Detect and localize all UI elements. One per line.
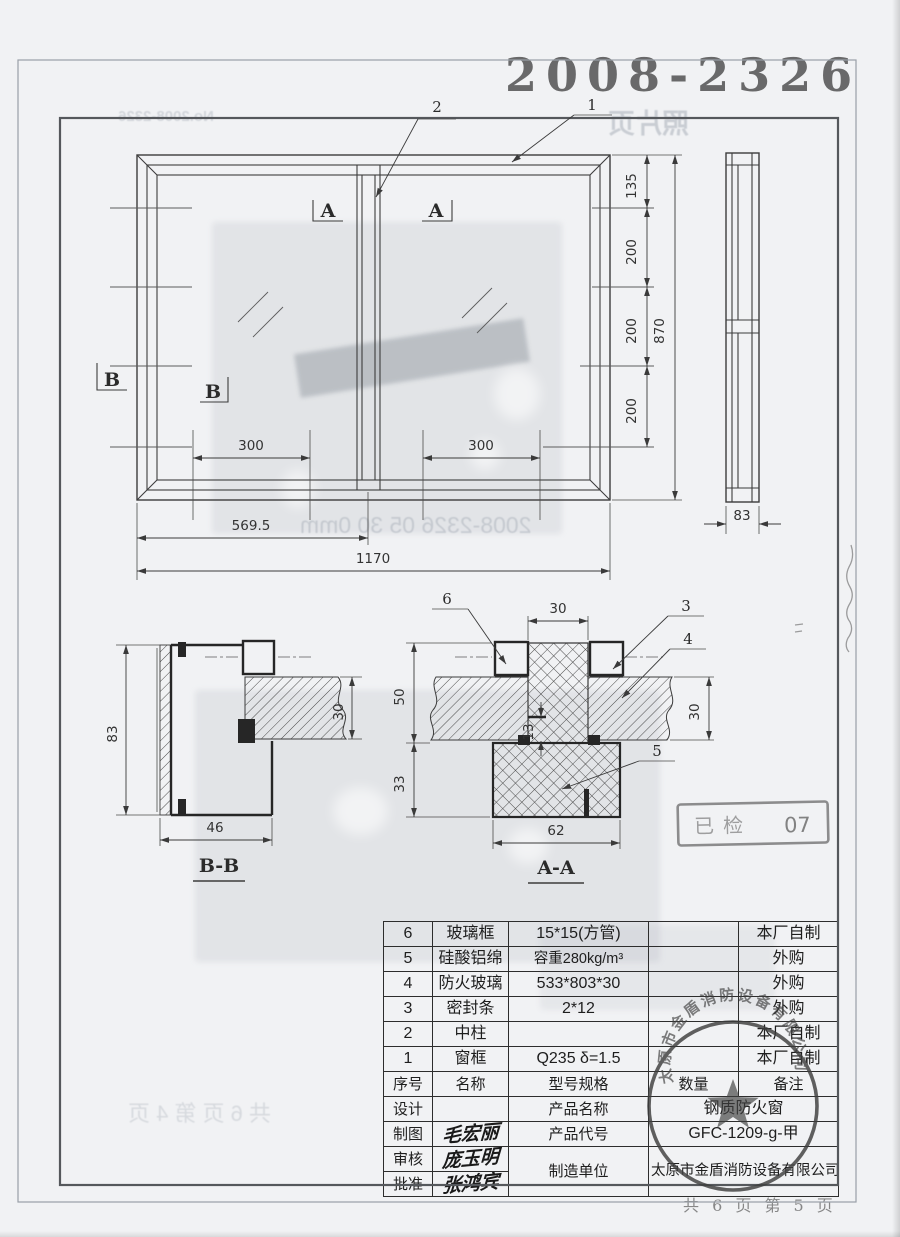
bom-qty [649, 922, 739, 947]
handwritten-signature: 庞玉明 [442, 1147, 500, 1171]
svg-text:4: 4 [683, 630, 693, 648]
title-block-row: 审核 庞玉明 制造单位 太原市金盾消防设备有限公司 [384, 1147, 839, 1172]
bom-seq: 4 [384, 972, 433, 997]
product-name-value: 钢质防火窗 [649, 1097, 839, 1122]
dim-200: 200 [624, 318, 640, 344]
inspection-stamp-text: 已检 [694, 814, 752, 838]
bom-seq: 1 [384, 1047, 433, 1072]
photo-bleed-blob [470, 440, 500, 470]
bom-header-name: 名称 [433, 1072, 509, 1097]
drawing-number-stamp: 2008-2326 [505, 48, 861, 102]
bom-header-spec: 型号规格 [509, 1072, 649, 1097]
photo-bleed-blob [281, 470, 315, 508]
title-block-row: 设计 产品名称 钢质防火窗 [384, 1097, 839, 1122]
bom-spec: 15*15(方管) [509, 922, 649, 947]
glazing-bead-section [590, 642, 623, 675]
bom-remark: 本厂自制 [739, 1047, 839, 1072]
scanned-drawing-page: No.2008-2326 照片页 2008-2326 05 30 0mm 共 6… [0, 0, 900, 1237]
callout-6: 6 [432, 590, 506, 664]
product-code-label: 产品代号 [509, 1122, 649, 1147]
bom-remark: 外购 [739, 997, 839, 1022]
bom-name: 密封条 [433, 997, 509, 1022]
bom-qty [649, 947, 739, 972]
photo-bleed-blob [508, 828, 548, 864]
title-block-row: 制图 毛宏丽 产品代号 GFC-1209-g-甲 [384, 1122, 839, 1147]
bom-qty [649, 997, 739, 1022]
bom-remark: 外购 [739, 947, 839, 972]
bom-row: 5 硅酸铝绵 容重280kg/m³ 外购 [384, 947, 839, 972]
page-footer: 共 6 页 第 5 页 [683, 1192, 837, 1216]
bom-name: 防火玻璃 [433, 972, 509, 997]
section-mark-b: B B [97, 363, 228, 403]
dim-200: 200 [624, 398, 640, 424]
dim-135: 135 [624, 173, 640, 199]
dim-83-depth: 83 [733, 508, 750, 524]
glazing-bead-section [243, 641, 274, 674]
scan-edge-shadow [0, 1231, 900, 1237]
product-name-label: 产品名称 [509, 1097, 649, 1122]
bom-row: 2 中柱 本厂自制 [384, 1022, 839, 1047]
draft-signature: 毛宏丽 [433, 1122, 509, 1147]
bom-seq: 6 [384, 922, 433, 947]
callout-3: 3 [613, 597, 704, 669]
dim-200: 200 [624, 239, 640, 265]
callout-2: 2 [376, 98, 456, 197]
bom-seq: 2 [384, 1022, 433, 1047]
svg-text:A: A [428, 200, 444, 222]
dim-1170: 1170 [356, 551, 390, 567]
bleed-footer: 共 6 页 第 4 页 [128, 1096, 271, 1128]
bom-name: 中柱 [433, 1022, 509, 1047]
dim-30-mullion: 30 [549, 601, 566, 617]
review-signature: 庞玉明 [433, 1147, 509, 1172]
bom-row: 4 防火玻璃 533*803*30 外购 [384, 972, 839, 997]
bleed-photo-page-label: 照片页 [608, 102, 689, 141]
manufacturer-label: 制造单位 [509, 1147, 649, 1197]
bleed-photo-caption: 2008-2326 05 30 0mm [300, 512, 531, 539]
bom-spec: 2*12 [509, 997, 649, 1022]
inspection-stamp-number: 07 [784, 813, 811, 838]
dim-83-height: 83 [105, 725, 121, 742]
handwritten-signature: 毛宏丽 [442, 1122, 500, 1146]
bom-header-qty: 数量 [649, 1072, 739, 1097]
bom-header-seq: 序号 [384, 1072, 433, 1097]
bom-row: 1 窗框 Q235 δ=1.5 本厂自制 [384, 1047, 839, 1072]
bom-header-row: 序号 名称 型号规格 数量 备注 [384, 1072, 839, 1097]
product-code-value: GFC-1209-g-甲 [649, 1122, 839, 1147]
bom-remark: 本厂自制 [739, 1022, 839, 1047]
glazing-bead-section [495, 642, 528, 675]
design-label: 设计 [384, 1097, 433, 1122]
margin-scribble [795, 545, 853, 652]
bom-header-remark: 备注 [739, 1072, 839, 1097]
handwritten-signature: 张鸿宾 [442, 1172, 500, 1196]
inspection-stamp: 已检 07 [678, 801, 829, 845]
dim-30-glass: 30 [687, 703, 703, 720]
scan-edge-shadow [892, 0, 900, 1237]
bom-name: 硅酸铝绵 [433, 947, 509, 972]
bom-qty [649, 1022, 739, 1047]
svg-text:B: B [104, 369, 120, 391]
photo-bleed-blob [494, 368, 540, 420]
bom-seq: 3 [384, 997, 433, 1022]
draft-label: 制图 [384, 1122, 433, 1147]
side-depth-dimension: 83 [704, 506, 781, 534]
design-signature [433, 1097, 509, 1122]
bleed-doc-number: No.2008-2326 [118, 108, 214, 125]
bom-remark: 本厂自制 [739, 922, 839, 947]
bom-spec: 容重280kg/m³ [509, 947, 649, 972]
dim-870: 870 [652, 318, 668, 344]
approve-label: 批准 [384, 1172, 433, 1197]
section-mark-a: A A [313, 200, 452, 222]
bom-spec [509, 1022, 649, 1047]
height-dimensions: 135 200 200 200 870 [612, 155, 682, 500]
bom-row: 3 密封条 2*12 外购 [384, 997, 839, 1022]
svg-text:A: A [320, 200, 336, 222]
callout-1: 1 [512, 96, 612, 162]
bom-title-block-table: 6 玻璃框 15*15(方管) 本厂自制 5 硅酸铝绵 容重280kg/m³ 外… [383, 921, 839, 1197]
bom-row: 6 玻璃框 15*15(方管) 本厂自制 [384, 922, 839, 947]
bom-spec: 533*803*30 [509, 972, 649, 997]
bom-remark: 外购 [739, 972, 839, 997]
bom-qty [649, 1047, 739, 1072]
svg-text:6: 6 [442, 590, 452, 608]
approve-signature: 张鸿宾 [433, 1172, 509, 1197]
bom-spec: Q235 δ=1.5 [509, 1047, 649, 1072]
bom-name: 玻璃框 [433, 922, 509, 947]
review-label: 审核 [384, 1147, 433, 1172]
bom-name: 窗框 [433, 1047, 509, 1072]
bom-seq: 5 [384, 947, 433, 972]
manufacturer-value: 太原市金盾消防设备有限公司 [649, 1147, 839, 1197]
side-view: 83 [704, 153, 781, 534]
bom-qty [649, 972, 739, 997]
svg-text:3: 3 [681, 597, 691, 615]
callout-4: 4 [622, 630, 706, 698]
svg-text:2: 2 [432, 98, 442, 116]
photo-bleed-blob [333, 787, 388, 835]
